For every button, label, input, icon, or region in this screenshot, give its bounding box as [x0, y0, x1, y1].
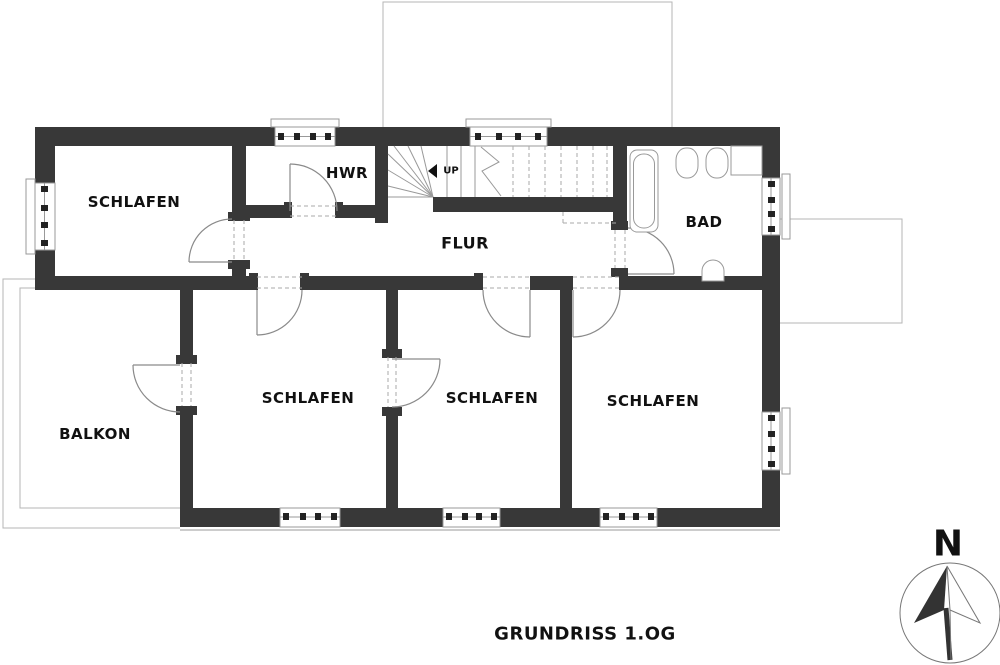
room-label-schlafen-sw: SCHLAFEN	[262, 389, 355, 407]
room-label-bad: BAD	[686, 213, 723, 231]
door-schlafen-se	[573, 290, 620, 337]
cabinet	[731, 146, 762, 175]
door-schlafen-nw	[189, 219, 232, 262]
room-label-flur: FLUR	[441, 234, 489, 253]
window-bad	[762, 174, 790, 239]
window-bottom-3	[600, 508, 657, 527]
roof-outline-top	[383, 2, 672, 127]
door-opening-dashes	[182, 206, 625, 407]
room-label-schlafen-s: SCHLAFEN	[446, 389, 539, 407]
window-bottom-2	[443, 508, 500, 527]
toilet	[702, 260, 724, 281]
stairs-up-label: UP	[443, 166, 458, 177]
door-connecting-bedrooms	[392, 359, 440, 407]
door-schlafen-s	[483, 290, 530, 337]
windows	[26, 119, 790, 527]
window-top-stairs	[466, 119, 551, 146]
walls	[35, 127, 780, 527]
room-label-schlafen-se: SCHLAFEN	[607, 392, 700, 410]
room-label-hwr: HWR	[326, 164, 368, 182]
window-left	[26, 179, 55, 254]
winder-treads	[388, 146, 433, 197]
sink	[676, 148, 698, 178]
compass-needle-dark	[914, 566, 947, 623]
window-right-bedroom	[762, 408, 790, 474]
room-label-balkon: BALKON	[59, 425, 131, 443]
stair-break-line	[481, 147, 501, 196]
up-arrow-icon	[428, 164, 437, 178]
plan-title: GRUNDRISS 1.OG	[494, 624, 676, 645]
floor-plan: SCHLAFEN HWR FLUR BAD BALKON SCHLAFEN SC…	[0, 0, 1000, 665]
window-bottom-1	[280, 508, 340, 527]
roof-outline-right	[780, 219, 902, 323]
window-top-hwr	[271, 119, 339, 146]
floor-plan-drawing	[0, 0, 1000, 665]
compass-rose	[900, 563, 1000, 663]
sink	[706, 148, 728, 178]
door-bad	[628, 228, 674, 274]
door-balcony	[133, 365, 180, 412]
bathtub-inner	[634, 154, 655, 228]
compass-north-label: N	[933, 524, 963, 565]
compass-needle-light	[947, 566, 980, 623]
room-label-schlafen-nw: SCHLAFEN	[88, 193, 181, 211]
door-schlafen-sw	[257, 290, 302, 335]
